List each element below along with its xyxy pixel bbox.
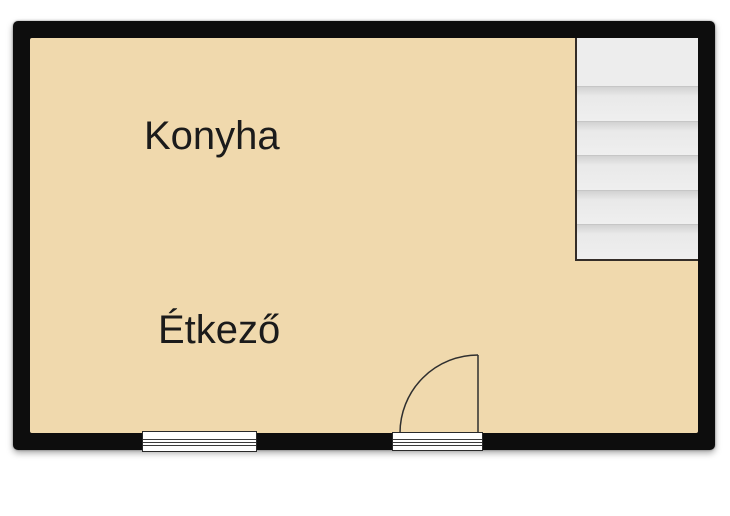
stair-tread <box>577 86 698 121</box>
stair-tread <box>577 121 698 156</box>
room-floor: Konyha Étkező <box>30 38 698 433</box>
staircase <box>575 38 698 261</box>
window-pane-line <box>143 445 256 446</box>
building-outline: Konyha Étkező <box>13 21 715 450</box>
threshold-line <box>393 439 482 440</box>
room-label-konyha: Konyha <box>144 116 280 156</box>
window-icon <box>142 431 257 452</box>
door-opening-icon <box>392 432 483 451</box>
stair-tread <box>577 190 698 225</box>
window-pane-line <box>143 442 256 443</box>
window-pane-line <box>143 439 256 440</box>
stair-tread <box>577 38 698 86</box>
stair-tread <box>577 155 698 190</box>
floorplan-canvas: Konyha Étkező <box>0 0 730 516</box>
room-label-etkezo: Étkező <box>158 310 280 350</box>
threshold-line <box>393 442 482 443</box>
stair-tread <box>577 224 698 259</box>
threshold-line <box>393 445 482 446</box>
